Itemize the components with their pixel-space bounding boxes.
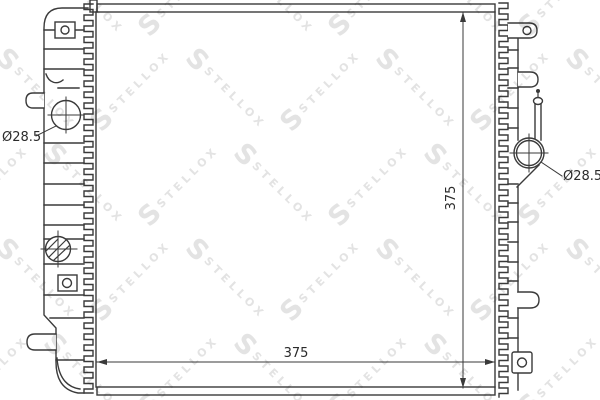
right-lower-bracket-hole bbox=[518, 358, 527, 367]
core-height-dimension-label: 375 bbox=[444, 186, 459, 211]
arrow-up-icon bbox=[460, 12, 466, 22]
core-width-dimension-label: 375 bbox=[284, 346, 309, 361]
left-lower-pipe bbox=[27, 334, 56, 350]
right-lower-pipe bbox=[518, 292, 539, 308]
right-port-crosshair bbox=[510, 134, 548, 172]
right-diameter-leader-line bbox=[541, 162, 562, 176]
right-tube-cap bbox=[534, 98, 543, 105]
right-top-bracket-hole bbox=[523, 27, 531, 35]
left-lower-bracket-hole bbox=[63, 279, 72, 288]
right-tank-ribs bbox=[508, 50, 518, 338]
right-tube-pin-head bbox=[536, 89, 540, 93]
left-comb bbox=[84, 4, 93, 393]
core-side-edges bbox=[96, 12, 495, 387]
radiator-drawing: Ø28.5 Ø28.5 375 375 bbox=[0, 0, 600, 400]
right-tank bbox=[508, 23, 562, 390]
arrow-right-icon bbox=[485, 359, 495, 365]
core-top-band bbox=[97, 4, 495, 12]
right-upper-pipe bbox=[518, 72, 538, 87]
core-bottom-band bbox=[97, 387, 495, 395]
arrow-left-icon bbox=[97, 359, 107, 365]
left-top-bracket-hole bbox=[61, 26, 69, 34]
left-upper-pipe bbox=[26, 93, 44, 108]
left-hook-detail bbox=[46, 74, 63, 83]
dimension-vertical bbox=[460, 12, 466, 388]
right-comb bbox=[499, 3, 508, 397]
left-tank-inner-curve bbox=[57, 358, 80, 389]
left-port-diameter-label: Ø28.5 bbox=[2, 130, 41, 145]
left-tank bbox=[26, 8, 93, 393]
right-port-diameter-label: Ø28.5 bbox=[563, 169, 600, 184]
radiator-diagram-page: Ø28.5 Ø28.5 375 375 SSTELLOXSSTELLOXSSTE… bbox=[0, 0, 600, 400]
right-overflow-tube bbox=[535, 104, 541, 140]
